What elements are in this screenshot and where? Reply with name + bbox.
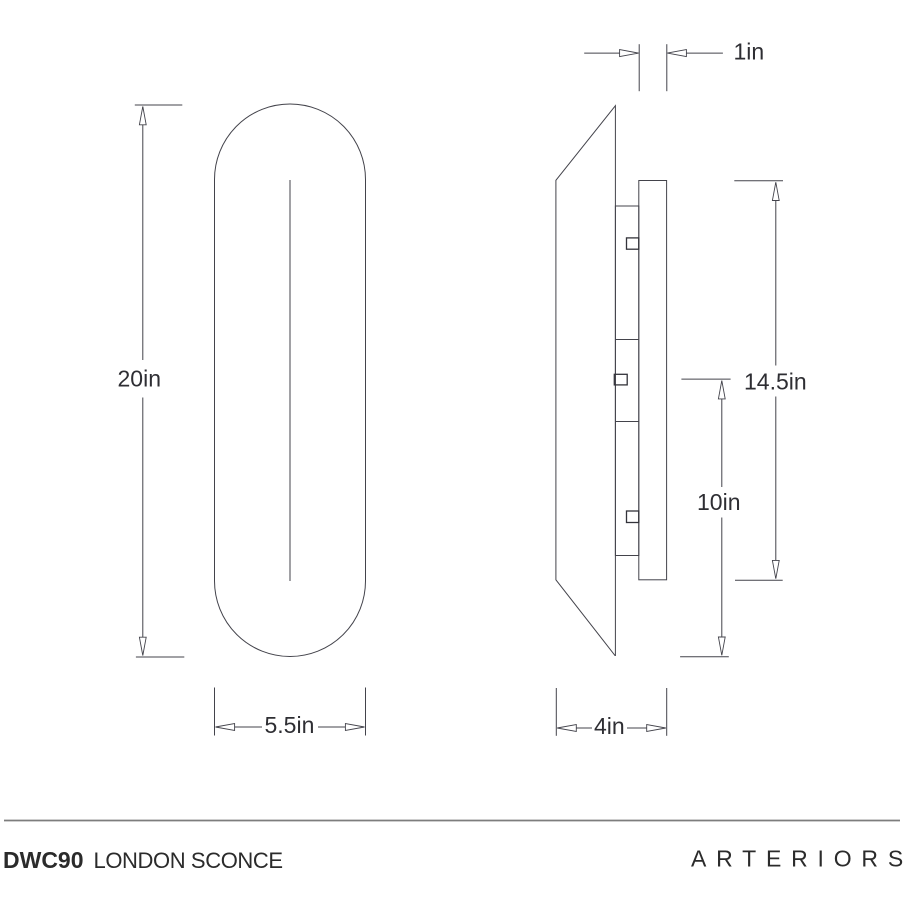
- svg-text:10in: 10in: [697, 489, 740, 515]
- svg-text:14.5in: 14.5in: [744, 369, 807, 395]
- svg-text:20in: 20in: [118, 366, 161, 392]
- svg-text:LONDON SCONCE: LONDON SCONCE: [94, 848, 283, 873]
- svg-text:DWC90: DWC90: [3, 847, 84, 873]
- svg-text:4in: 4in: [594, 713, 625, 739]
- svg-text:1in: 1in: [734, 39, 765, 65]
- svg-text:ARTERIORS: ARTERIORS: [691, 846, 904, 872]
- svg-text:5.5in: 5.5in: [265, 712, 315, 738]
